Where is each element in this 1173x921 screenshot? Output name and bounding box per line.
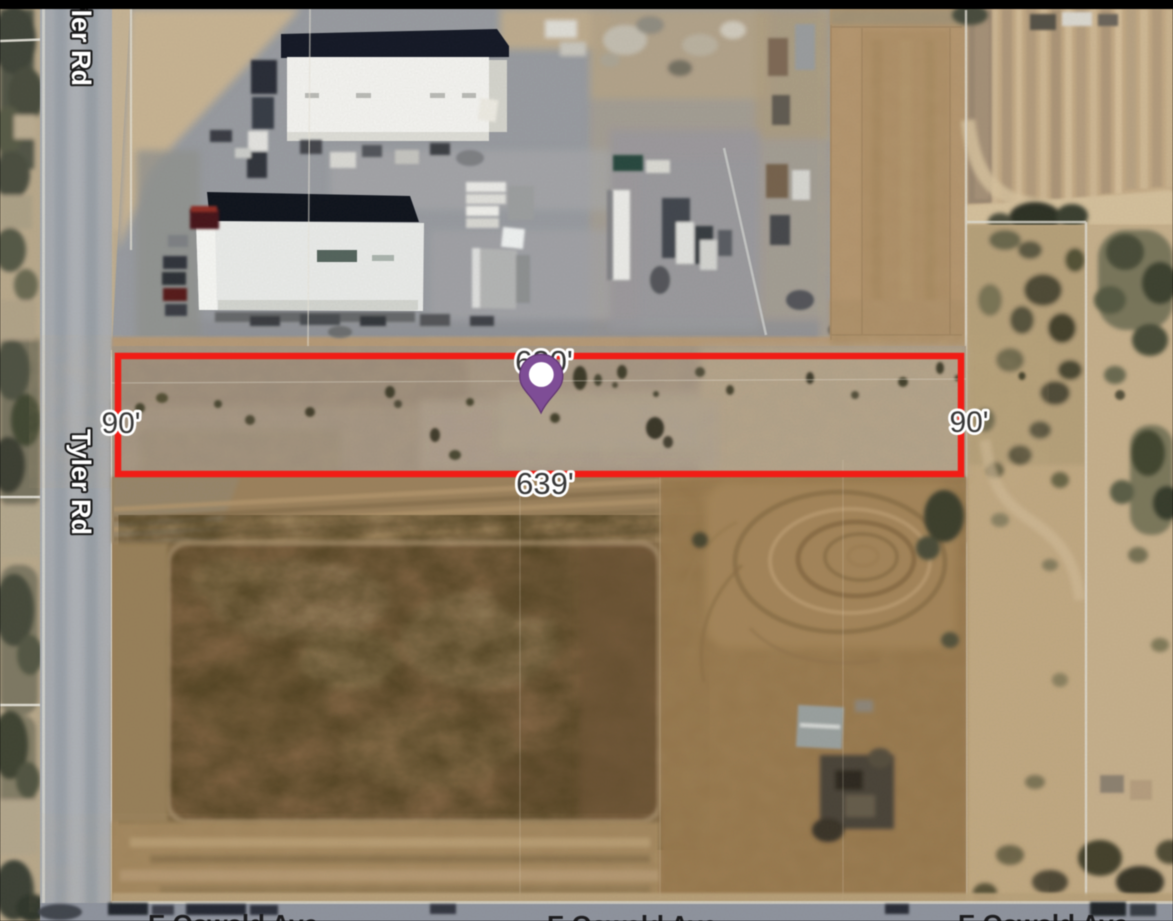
- svg-text:639': 639': [516, 466, 574, 501]
- svg-text:Tyler Rd: Tyler Rd: [66, 0, 96, 86]
- svg-text:90': 90': [101, 407, 140, 440]
- svg-text:Tyler Rd: Tyler Rd: [66, 429, 96, 535]
- svg-text:90': 90': [949, 406, 988, 439]
